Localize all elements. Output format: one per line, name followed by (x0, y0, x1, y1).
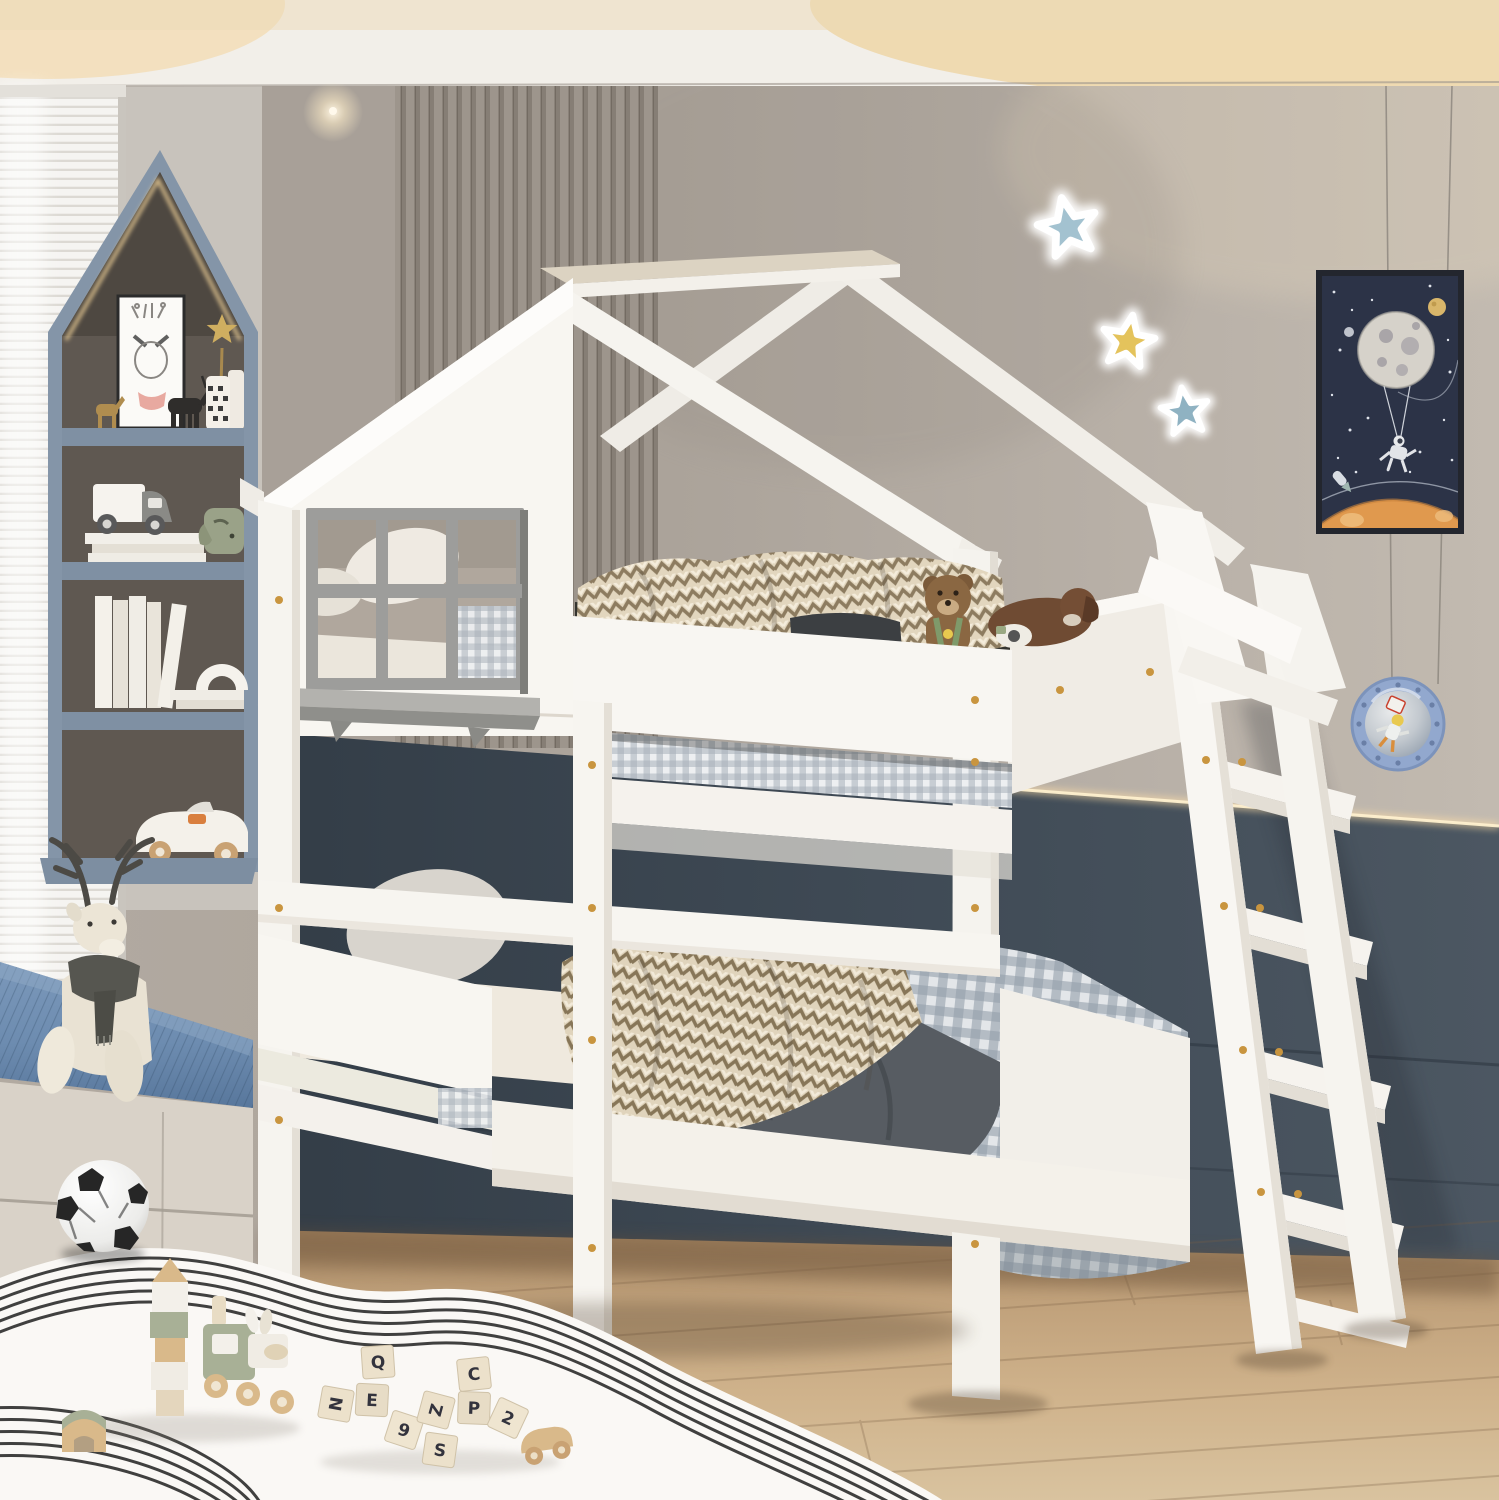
scene-canvas: Q E N 9 S C P Z 2 (0, 0, 1499, 1500)
room-scene: Q E N 9 S C P Z 2 (0, 0, 1499, 1500)
